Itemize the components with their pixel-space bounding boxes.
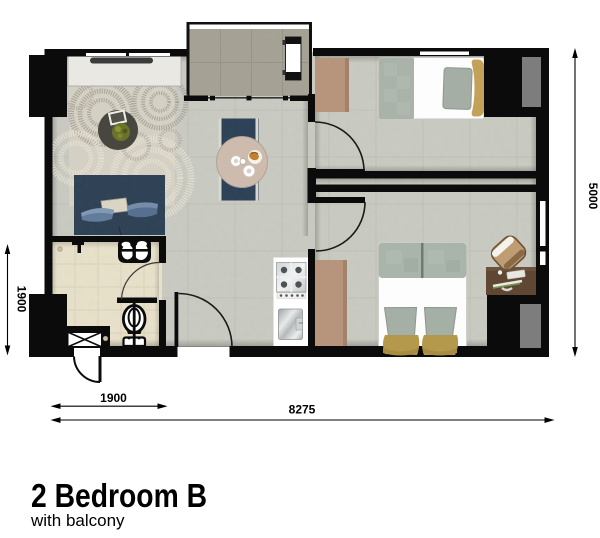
svg-text:8275: 8275 <box>289 403 316 417</box>
svg-text:1900: 1900 <box>15 286 29 313</box>
svg-text:1900: 1900 <box>100 391 127 405</box>
svg-text:5000: 5000 <box>586 183 600 210</box>
svg-text:2 Bedroom B: 2 Bedroom B <box>31 477 207 514</box>
svg-text:with balcony: with balcony <box>30 511 125 530</box>
